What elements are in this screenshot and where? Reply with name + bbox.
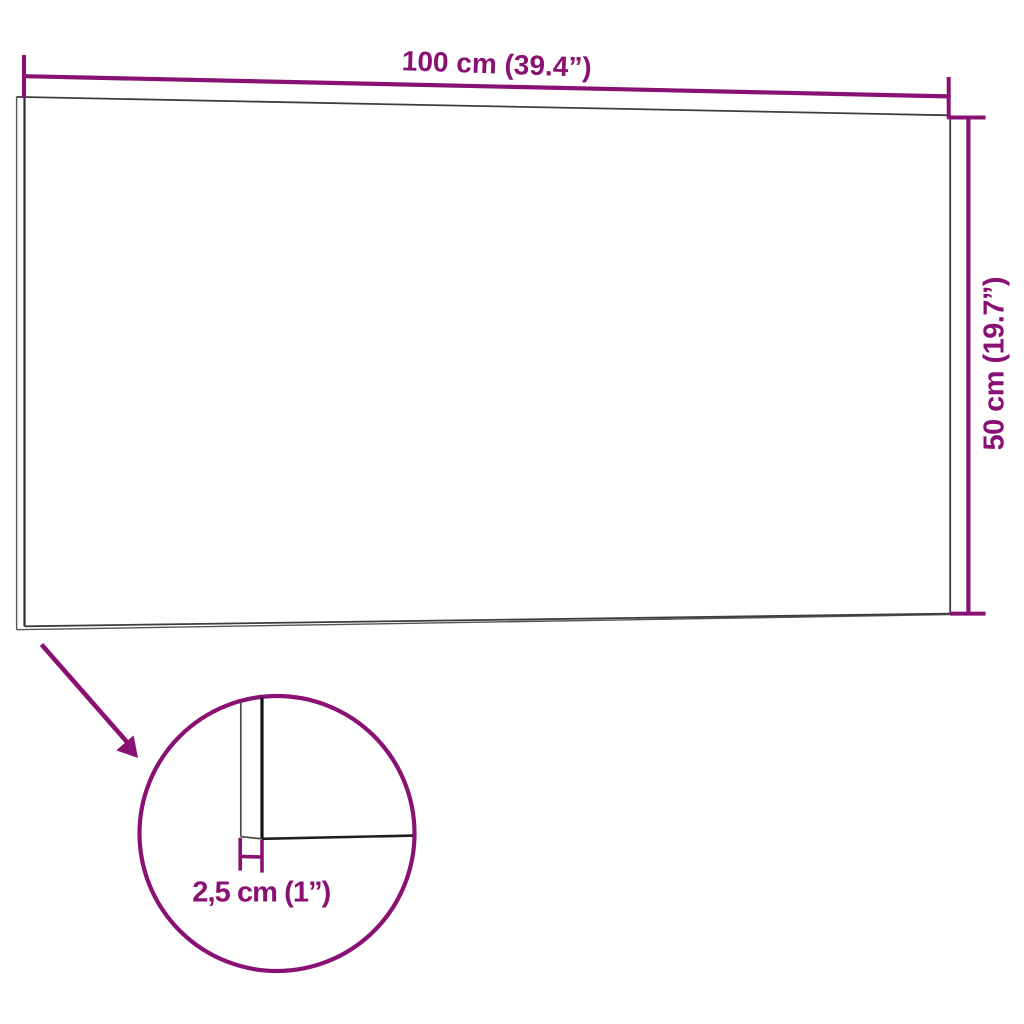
svg-text:50 cm (19.7”): 50 cm (19.7”)	[979, 277, 1011, 451]
svg-text:2,5 cm (1”): 2,5 cm (1”)	[192, 876, 331, 908]
svg-text:100 cm (39.4”): 100 cm (39.4”)	[401, 45, 592, 83]
